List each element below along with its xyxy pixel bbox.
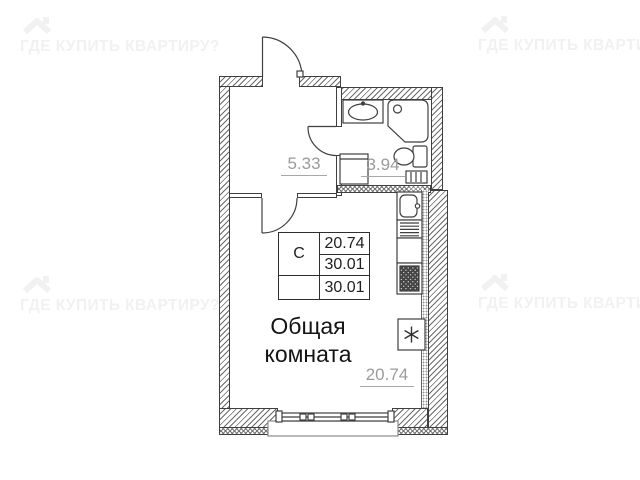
hallway-area-label: 5.33 (281, 155, 327, 176)
apartment-type-cell: С (279, 233, 320, 276)
bathroom-area-label: 3.94 (361, 156, 405, 177)
bathroom-sink-icon (343, 100, 383, 123)
bathroom-door (308, 127, 336, 156)
window-sill (268, 421, 398, 436)
living-room-door (262, 198, 297, 233)
shower-cabin-icon (388, 100, 428, 142)
kitchen-counter (397, 238, 422, 263)
refrigerator-icon (398, 319, 425, 350)
empty-cell (279, 276, 320, 299)
floor-plan-image: ГДЕ КУПИТЬ КВАРТИРУ? ГДЕ КУПИТЬ КВАРТИРУ… (0, 0, 640, 480)
entry-door (263, 37, 304, 77)
kitchen-sink-icon (397, 192, 422, 220)
window (268, 411, 398, 436)
table-value-cell: 20.74 (320, 233, 369, 255)
table-value-cell: 30.01 (320, 276, 369, 299)
towel-radiator-icon (406, 171, 427, 183)
table-value-cell: 30.01 (320, 255, 369, 276)
stove-icon (397, 263, 422, 294)
apartment-info-table: С 20.74 30.01 30.01 (278, 232, 370, 300)
dish-drainer-icon (397, 220, 422, 238)
room-area-label: 20.74 (360, 366, 414, 387)
room-name-label: Общая комната (233, 312, 383, 368)
